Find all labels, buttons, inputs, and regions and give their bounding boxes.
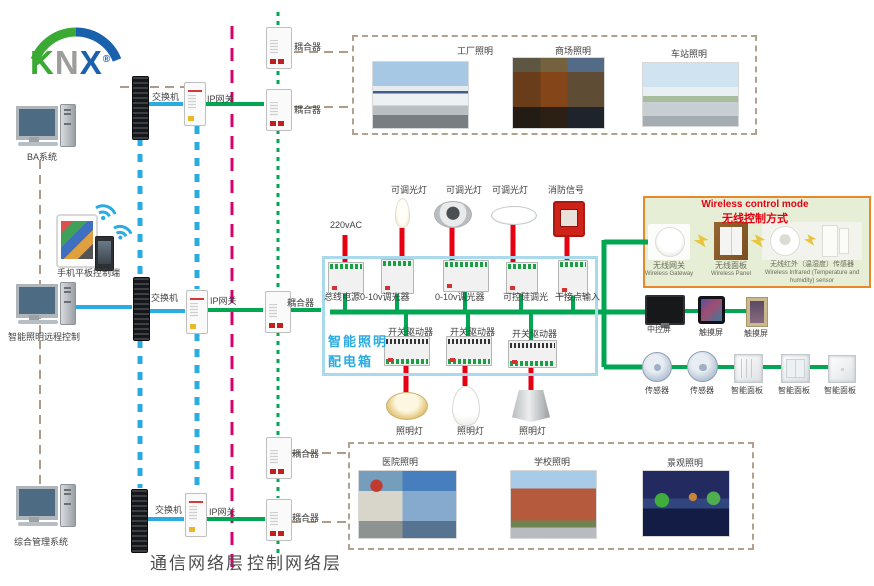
switch-driver-module-3: [508, 340, 557, 368]
dry-contact-label: 干接点输入: [555, 290, 600, 303]
smart-panel-3: [828, 355, 856, 383]
wireless-panel-label-en: Wireless Panel: [704, 271, 758, 279]
coupler-top-1: [266, 27, 292, 69]
fire-alarm: [553, 201, 585, 237]
sensor-label: 传感器: [645, 385, 669, 396]
management-computer: [16, 486, 78, 530]
remote-control-label: 智能照明远程控制: [8, 330, 80, 343]
wireless-title-en: Wireless control mode: [643, 199, 867, 210]
ba-system-computer: [16, 106, 78, 150]
dimmer-module-2: [443, 260, 489, 292]
ceiling-sensor-2: [687, 351, 718, 382]
switch-driver-module-1: [384, 336, 430, 366]
coupler-label: 耦合器: [294, 103, 321, 116]
bus-power-label: 总线电源: [324, 290, 360, 303]
wireless-panel-label-zh: 无线面板: [706, 261, 756, 271]
hospital-lighting-label: 医院照明: [382, 455, 418, 468]
landscape-lighting-label: 景观照明: [667, 456, 703, 469]
landscape-photo: [642, 470, 730, 537]
ip-gateway-top-label: IP网关: [207, 92, 234, 105]
central-control-screen: [645, 295, 685, 325]
switch-driver-module-2: [446, 336, 492, 366]
knx-logo: KNX®: [26, 22, 126, 86]
coupler-label: 耦合器: [294, 40, 321, 53]
wireless-gateway-tile: [648, 224, 690, 260]
coupler-label: 耦合器: [292, 511, 319, 524]
ba-system-label: BA系统: [27, 150, 57, 163]
switch-driver-label: 开关驱动器: [512, 327, 557, 340]
mall-lighting-label: 商场照明: [555, 44, 591, 57]
dimmable-lamp-label: 可调光灯: [492, 183, 528, 196]
smart-panel-1: [734, 354, 763, 383]
school-photo: [510, 470, 597, 539]
knx-system-diagram: KNX® BA系统 智能照明远程控制 综合管理系统 手机平板控制端 交换机 交换…: [0, 0, 874, 586]
control-network-layer-label: 控制网络层: [247, 549, 342, 574]
smart-panel-label: 智能面板: [824, 385, 856, 396]
mobile-label: 手机平板控制端: [57, 266, 120, 279]
cabinet-title: 智能照明配电箱: [328, 332, 388, 371]
fire-signal-label: 消防信号: [548, 183, 584, 196]
smart-panel-2: [781, 354, 810, 383]
coupler-label: 耦合器: [287, 296, 314, 309]
power-supply-label: 220vAC: [330, 220, 362, 230]
switch-top: [132, 76, 149, 140]
coupler-label: 耦合器: [292, 447, 319, 460]
switch-driver-label: 开关驱动器: [388, 325, 433, 338]
wireless-title-zh: 无线控制方式: [643, 210, 867, 226]
wireless-sensor-tile: [762, 222, 862, 260]
management-label: 综合管理系统: [14, 535, 68, 548]
central-screen-label: 中控屏: [647, 324, 671, 335]
wireless-ir-label-en: Wireless Infrared (Temperature and humid…: [760, 270, 864, 285]
ip-gateway-middle-label: IP网关: [210, 294, 237, 307]
highbay-lamp: [512, 390, 550, 422]
factory-lighting-label: 工厂照明: [457, 44, 493, 57]
wireless-panel-device: [714, 222, 748, 260]
comm-network-layer-label: 通信网络层: [150, 549, 245, 574]
dimmable-lamp-label: 可调光灯: [391, 183, 427, 196]
station-lighting-label: 车站照明: [671, 47, 707, 60]
touch-screen-label: 触摸屏: [699, 327, 723, 338]
switch-middle-label: 交换机: [151, 291, 178, 304]
switch-driver-label: 开关驱动器: [450, 325, 495, 338]
smart-panel-label: 智能面板: [778, 385, 810, 396]
touch-screen-2: [746, 297, 768, 327]
dimmer1-label: 0-10v调光器: [360, 290, 410, 303]
wireless-ir-label-zh: 无线红外（温湿度）传感器: [758, 261, 866, 270]
scr-dimmer-label: 可控硅调光: [503, 290, 548, 303]
dimmer-module-1: [381, 259, 414, 294]
coupler-bottom-2: [266, 499, 292, 541]
ip-gateway-top: [184, 82, 206, 126]
sensor-label: 传感器: [690, 385, 714, 396]
mall-photo: [512, 57, 605, 129]
switch-middle: [133, 277, 150, 341]
switch-bottom-label: 交换机: [155, 503, 182, 516]
ip-gateway-bottom-label: IP网关: [209, 505, 236, 518]
touch-screen-label: 触摸屏: [744, 328, 768, 339]
touch-screen-1: [698, 296, 725, 324]
downlight-lamp: [434, 201, 472, 228]
ceiling-sensor-1: [642, 352, 672, 382]
switch-top-label: 交换机: [152, 90, 179, 103]
lighting-lamp-label: 照明灯: [396, 424, 423, 437]
dimmable-lamp-label: 可调光灯: [446, 183, 482, 196]
factory-photo: [372, 61, 469, 129]
switch-bottom: [131, 489, 148, 553]
lighting-lamp-label: 照明灯: [519, 424, 546, 437]
knx-logo-text: KNX®: [30, 44, 111, 82]
panel-light: [491, 206, 537, 225]
tablet-device: [56, 214, 98, 268]
coupler-bottom-1: [266, 437, 292, 479]
smart-panel-label: 智能面板: [731, 385, 763, 396]
ufo-lamp: [386, 392, 428, 420]
bulb-lamp: [452, 386, 480, 426]
candle-bulb: [395, 198, 410, 228]
dimmer2-label: 0-10v调光器: [435, 290, 485, 303]
school-lighting-label: 学校照明: [534, 455, 570, 468]
ip-gateway-middle: [186, 290, 208, 334]
station-photo: [642, 62, 739, 127]
coupler-top-2: [266, 89, 292, 131]
lighting-lamp-label: 照明灯: [457, 424, 484, 437]
remote-control-computer: [16, 284, 78, 328]
ip-gateway-bottom: [185, 493, 207, 537]
wireless-gateway-label-zh: 无线网关: [644, 261, 694, 271]
hospital-photo: [358, 470, 457, 539]
wireless-gateway-label-en: Wireless Gateway: [638, 271, 700, 279]
